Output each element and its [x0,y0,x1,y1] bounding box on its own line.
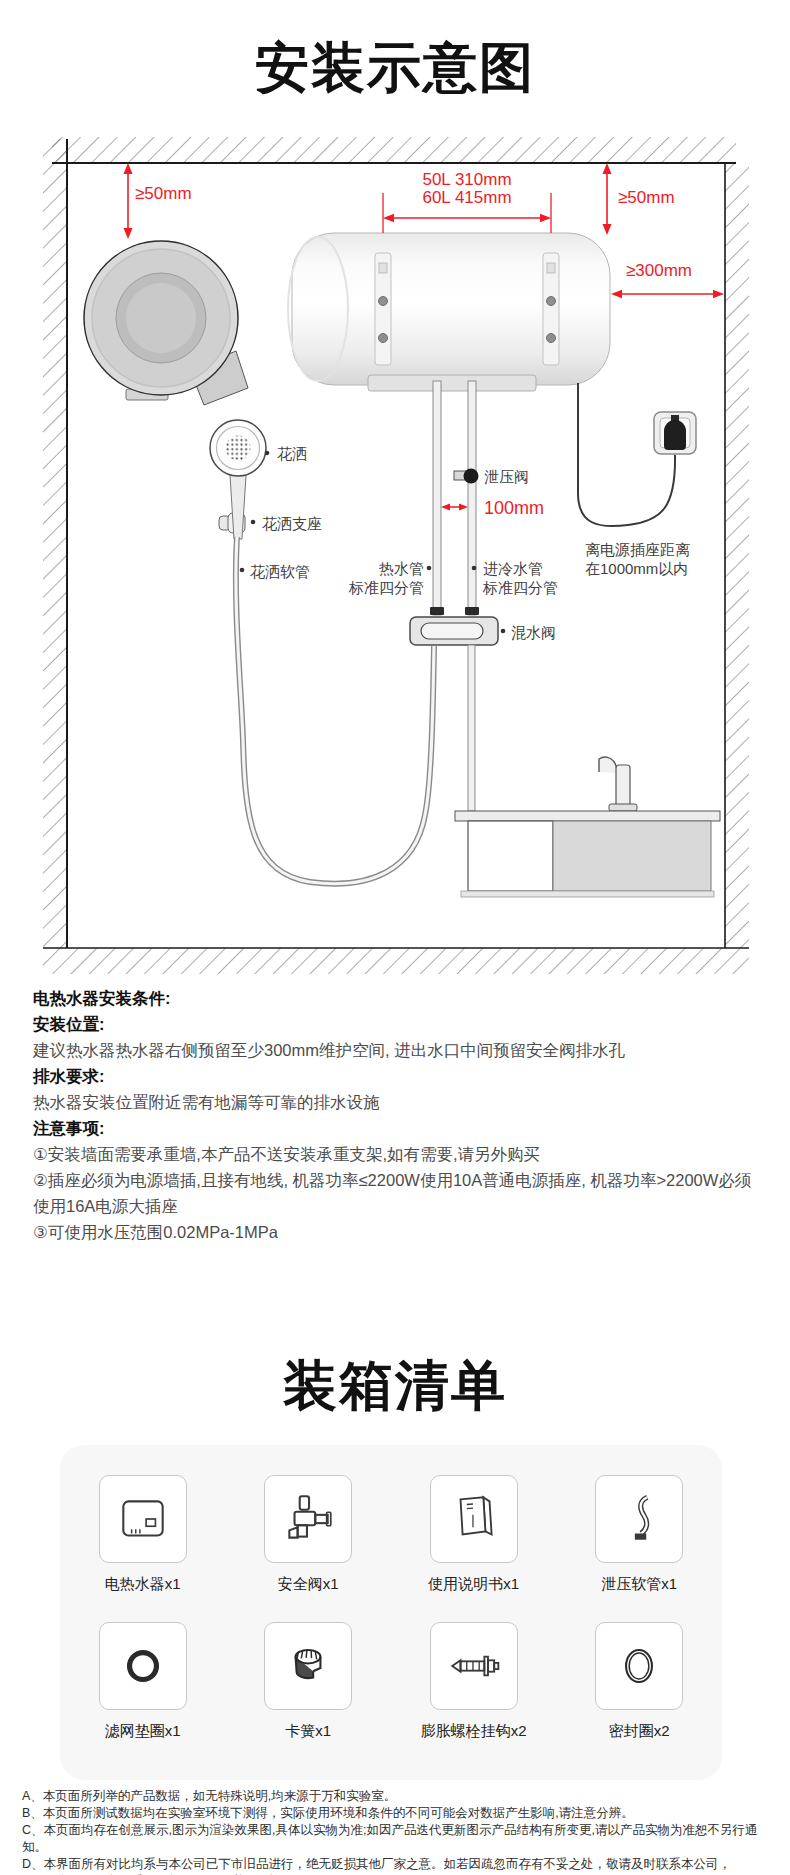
label-mixing-valve: 混水阀 [511,623,556,642]
note-2: ②插座必须为电源墙插,且接有地线, 机器功率≤2200W使用10A普通电源插座,… [33,1167,761,1219]
install-conditions: 电热水器安装条件: 安装位置: 建议热水器热水器右侧预留至少300mm维护空间,… [33,985,761,1245]
product-detail-page: 安装示意图 [0,0,790,1875]
label-outlet-note: 离电源插座距离 在1000mm以内 [585,540,690,578]
packing-item-label: 泄压软管x1 [601,1575,677,1594]
packing-item: 安全阀x1 [226,1475,392,1594]
packing-item: 卡簧x1 [226,1622,392,1741]
label-shower-bracket: 花洒支座 [262,514,322,533]
packing-list-panel: 电热水器x1 安全阀x1 [60,1445,722,1780]
packing-item: 泄压软管x1 [557,1475,723,1594]
location-label: 安装位置: [33,1011,761,1037]
packing-item-label: 卡簧x1 [285,1722,331,1741]
dim-pipe-gap: 100mm [484,499,544,517]
packing-grid: 电热水器x1 安全阀x1 [60,1445,722,1769]
seal-ring-icon [610,1637,668,1695]
packing-item-label: 滤网垫圈x1 [105,1722,181,1741]
dim-side-clearance: ≥300mm [626,262,692,280]
packing-item-label: 密封圈x2 [609,1722,670,1741]
location-text: 建议热水器热水器右侧预留至少300mm维护空间, 进出水口中间预留安全阀排水孔 [33,1037,761,1063]
water-heater-icon [114,1490,172,1548]
drain-label: 排水要求: [33,1063,761,1089]
packing-item-label: 电热水器x1 [105,1575,181,1594]
label-shower: 花洒 [277,444,307,463]
label-relief-valve: 泄压阀 [484,467,529,486]
note-3: ③可使用水压范围0.02MPa-1MPa [33,1219,761,1245]
install-diagram-title: 安装示意图 [0,32,790,105]
packing-item: 膨胀螺栓挂钩x2 [391,1622,557,1741]
safety-valve-icon [279,1490,337,1548]
snap-ring-icon [279,1637,337,1695]
drain-text: 热水器安装位置附近需有地漏等可靠的排水设施 [33,1089,761,1115]
packing-item: 密封圈x2 [557,1622,723,1741]
power-outlet [578,383,696,526]
legal-footnotes: A、本页面所列举的产品数据，如无特殊说明,均来源于万和实验室。 B、本页面所测试… [22,1788,774,1875]
footnote-a: A、本页面所列举的产品数据，如无特殊说明,均来源于万和实验室。 [22,1788,774,1805]
packing-item: 使用说明书x1 [391,1475,557,1594]
manual-icon [445,1490,503,1548]
footnote-c: C、本页面均存在创意展示,图示为渲染效果图,具体以实物为准;如因产品迭代更新图示… [22,1822,774,1856]
water-pipes [430,381,479,615]
sink [455,757,720,897]
packing-item-label: 膨胀螺栓挂钩x2 [421,1722,527,1741]
note-1: ①安装墙面需要承重墙,本产品不送安装承重支架,如有需要,请另外购买 [33,1141,761,1167]
packing-item-label: 安全阀x1 [278,1575,339,1594]
packing-item: 滤网垫圈x1 [60,1622,226,1741]
dim-right-clearance: ≥50mm [618,189,675,207]
label-hot-pipe: 热水管 标准四分管 [338,559,424,597]
packing-list-title: 装箱清单 [0,1350,790,1423]
relief-valve [454,469,479,484]
dim-top-line1: 50L 310mm [387,171,547,189]
footnote-d: D、本界面所有对比均系与本公司已下市旧品进行，绝无贬损其他厂家之意。如若因疏忽而… [22,1856,774,1873]
relief-hose-icon [610,1490,668,1548]
notes-label: 注意事项: [33,1115,761,1141]
water-heater-side-view [84,241,248,405]
packing-item: 电热水器x1 [60,1475,226,1594]
dim-top-line2: 60L 415mm [387,189,547,207]
water-heater-tank [288,233,610,391]
sink-feed-pipe [468,645,475,811]
mixing-valve [410,617,498,645]
dim-top-width: 50L 310mm 60L 415mm [387,171,547,207]
label-shower-hose: 花洒软管 [250,562,310,581]
packing-item-label: 使用说明书x1 [428,1575,519,1594]
label-cold-pipe: 进冷水管 标准四分管 [483,559,558,597]
conditions-heading: 电热水器安装条件: [33,985,761,1011]
expansion-bolt-icon [445,1637,503,1695]
shower-head [210,420,266,539]
footnote-b: B、本页面所测试数据均在实验室环境下测得，实际使用环境和条件的不同可能会对数据产… [22,1805,774,1822]
filter-gasket-icon [114,1637,172,1695]
dim-left-clearance: ≥50mm [135,185,192,203]
